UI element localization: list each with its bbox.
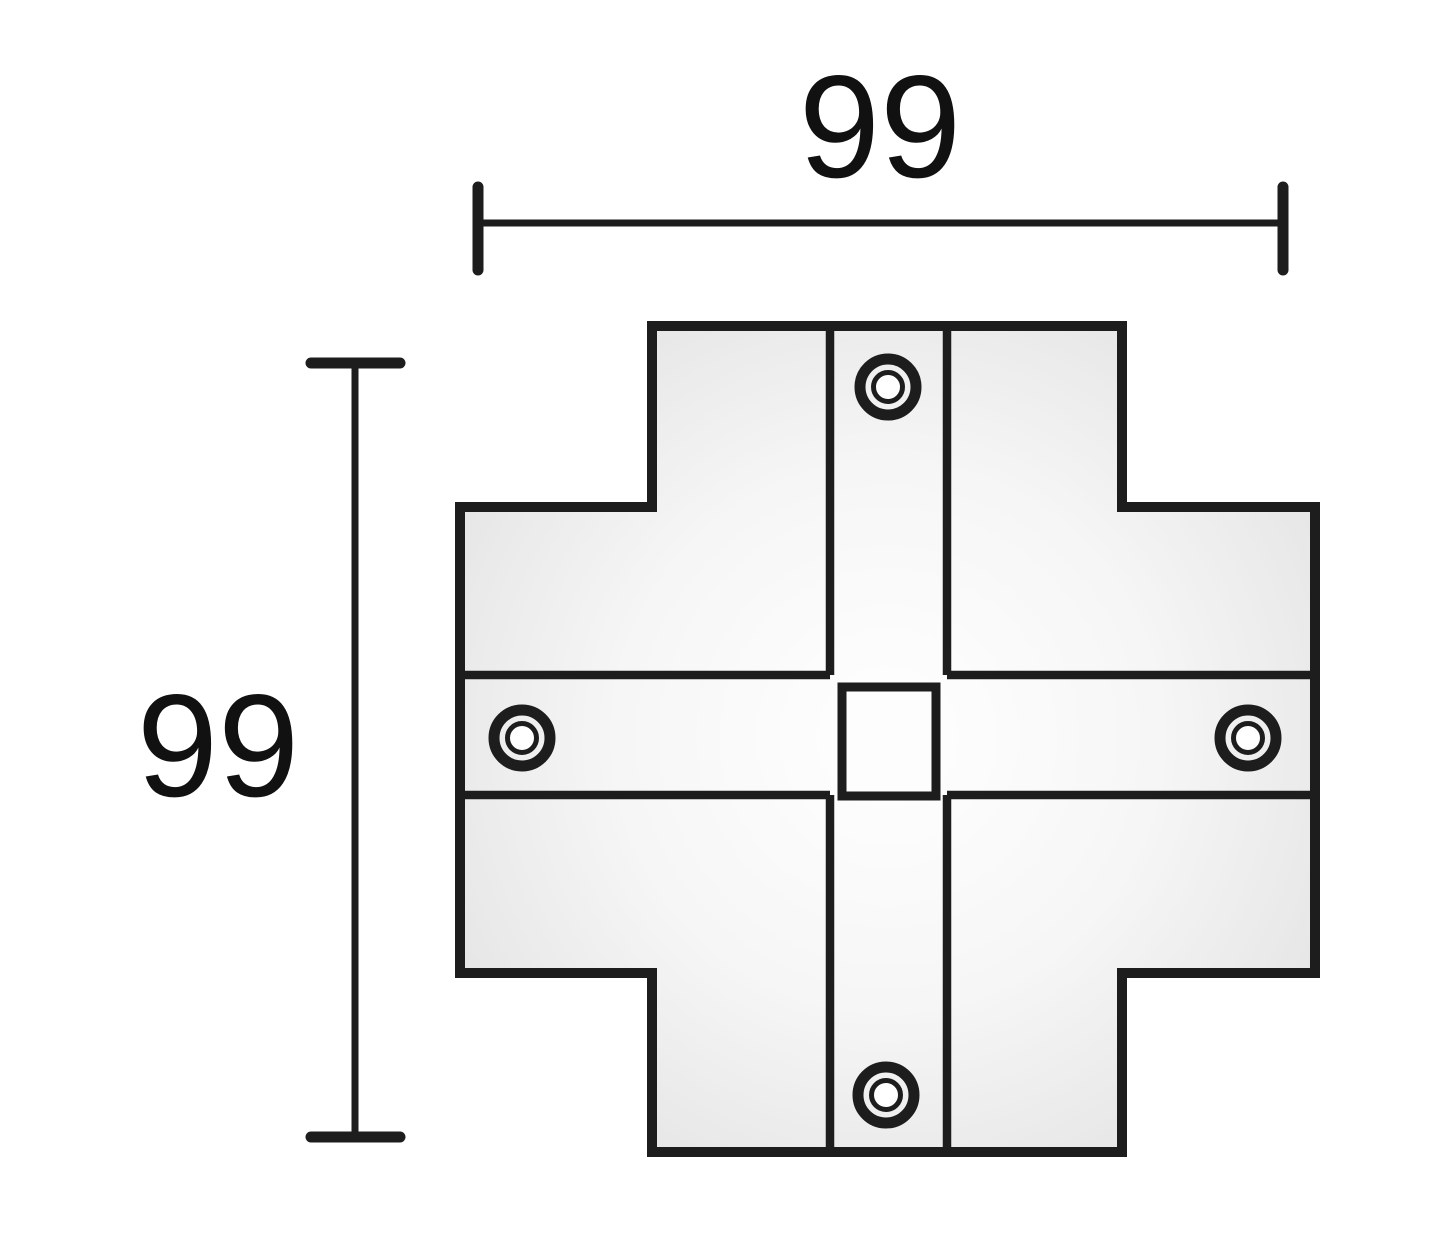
height-dimension-label: 99	[137, 664, 299, 827]
technical-drawing: 99 99	[0, 0, 1445, 1256]
screw-inner-ring	[1234, 724, 1263, 753]
vertical-dimension: 99	[137, 363, 400, 1137]
horizontal-dimension: 99	[478, 45, 1283, 270]
screw-inner-ring	[508, 724, 537, 753]
screw-inner-ring	[872, 1081, 901, 1110]
width-dimension-label: 99	[799, 45, 961, 208]
center-square-cutout	[842, 687, 936, 796]
screw-inner-ring	[874, 373, 903, 402]
drawing-canvas: 99 99	[0, 0, 1445, 1256]
